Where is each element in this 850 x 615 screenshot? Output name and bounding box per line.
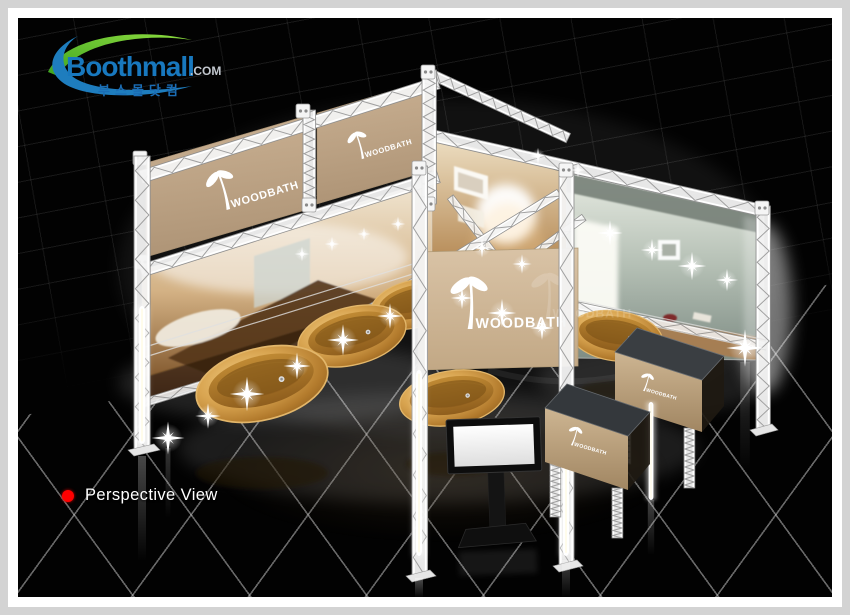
view-label-text: Perspective View xyxy=(85,486,218,505)
outer-frame: WOODBATH xyxy=(0,0,850,615)
monitor-screen xyxy=(453,424,534,467)
view-label: Perspective View xyxy=(62,486,218,505)
logo-text: Boothmall xyxy=(66,51,194,82)
logo-korean-text: 부스몰닷컴 xyxy=(98,83,183,98)
inner-frame: WOODBATH xyxy=(8,8,842,607)
bullet-icon xyxy=(62,490,74,502)
render-canvas: WOODBATH xyxy=(18,18,832,597)
logo-suffix: .COM xyxy=(190,64,221,78)
boothmall-logo: Boothmall .COM 부스몰닷컴 xyxy=(40,30,240,108)
